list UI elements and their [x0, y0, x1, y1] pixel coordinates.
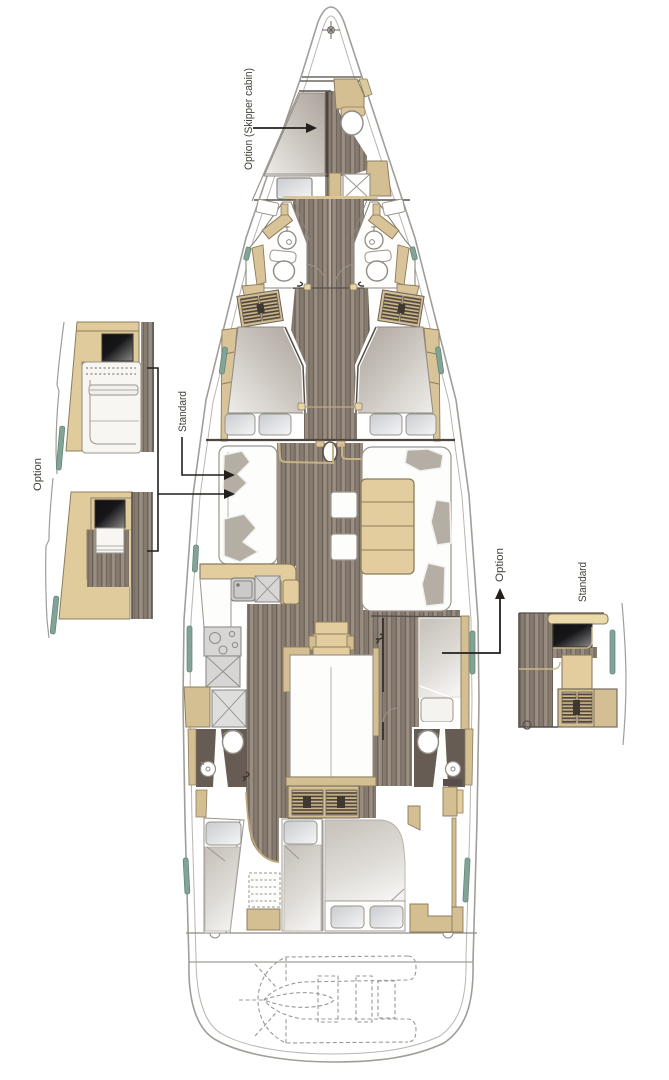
svg-text:Option: Option — [32, 458, 44, 491]
svg-text:Standard: Standard — [577, 562, 589, 602]
svg-text:Option: Option — [494, 548, 506, 582]
svg-text:Option (Skipper cabin): Option (Skipper cabin) — [243, 68, 255, 170]
svg-text:Standard: Standard — [177, 391, 189, 432]
